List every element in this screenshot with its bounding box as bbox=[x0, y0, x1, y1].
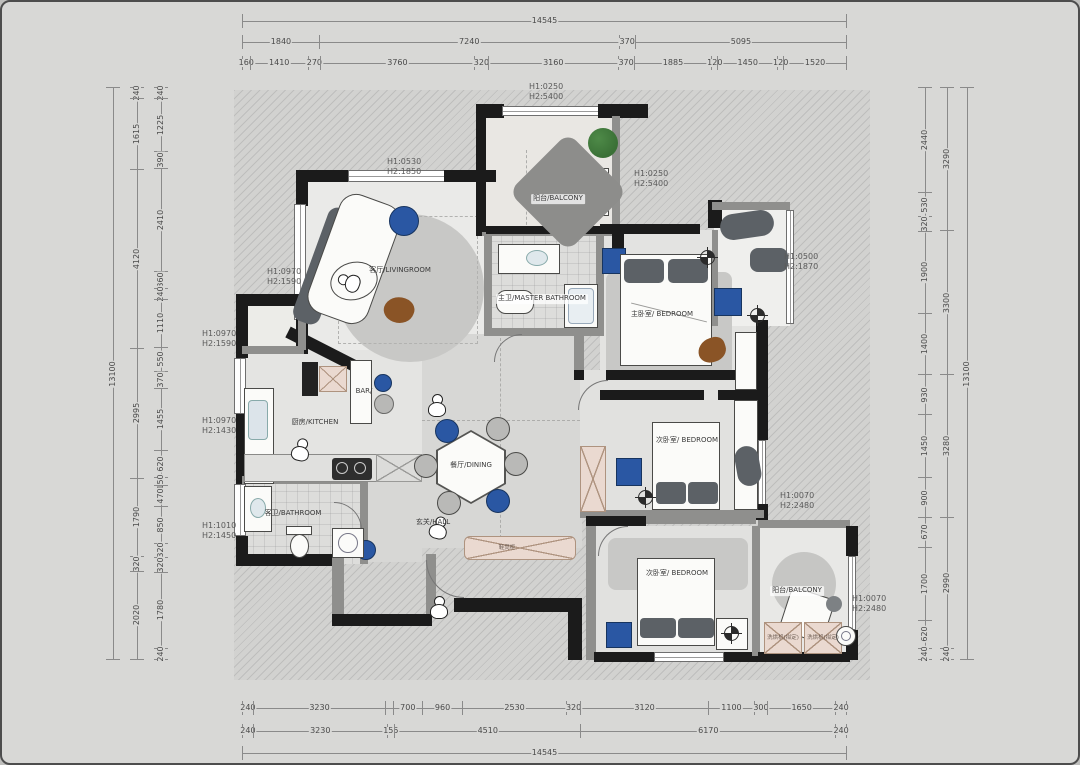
dim-label: 670 bbox=[921, 524, 929, 541]
height-note: H1:0500H2:1870 bbox=[784, 252, 818, 272]
dining-chair bbox=[486, 417, 510, 441]
dim-segment: 160 bbox=[242, 56, 250, 70]
nightstand bbox=[616, 458, 642, 486]
bar-stool bbox=[374, 394, 394, 414]
wall bbox=[332, 614, 432, 626]
dim-segment: 6170 bbox=[580, 724, 835, 738]
height-note: H1:0970H2:1430 bbox=[202, 416, 236, 436]
room-label: 次卧室/ BEDROOM bbox=[656, 437, 718, 445]
ceiling-mark bbox=[750, 308, 765, 323]
height-note: H1:0970H2:1590 bbox=[202, 329, 236, 349]
dim-label: 960 bbox=[434, 704, 451, 712]
wall bbox=[752, 526, 760, 656]
dim-label: 1520 bbox=[804, 59, 826, 67]
dim-segment: 1455 bbox=[154, 388, 168, 451]
dim-segment: 240 bbox=[242, 724, 253, 738]
height-note-h1: H1:0070 bbox=[852, 594, 886, 604]
dim-segment: 390 bbox=[154, 151, 168, 169]
burner bbox=[354, 462, 366, 474]
room-label: BAR/ bbox=[356, 388, 373, 396]
dim-segment: 1840 bbox=[242, 35, 319, 49]
dim-label: 3230 bbox=[308, 704, 330, 712]
dim-segment: 1100 bbox=[708, 701, 754, 715]
dim-label: 2990 bbox=[943, 572, 951, 594]
dim-segment: 3280 bbox=[940, 374, 954, 517]
nightstand bbox=[714, 288, 742, 316]
dim-segment: 320 bbox=[918, 216, 932, 231]
dining-chair bbox=[504, 452, 528, 476]
dim-label: 4120 bbox=[133, 248, 141, 270]
dining-chair bbox=[437, 491, 461, 515]
window bbox=[654, 652, 724, 662]
dim-chain-top-outer: 14545 bbox=[242, 14, 847, 28]
height-note-h1: H1:0250 bbox=[634, 169, 668, 179]
basin bbox=[526, 250, 548, 266]
dim-segment: 620 bbox=[918, 620, 932, 648]
dim-label: 5095 bbox=[730, 38, 752, 46]
dim-segment: 320 bbox=[566, 701, 580, 715]
dim-label: 240 bbox=[943, 645, 951, 662]
wall bbox=[332, 554, 344, 620]
wall bbox=[444, 170, 496, 182]
dim-segment: 1700 bbox=[918, 547, 932, 621]
dim-segment: 370 bbox=[619, 35, 635, 49]
wall bbox=[718, 390, 760, 400]
dim-segment: 240 bbox=[154, 648, 168, 659]
height-note-h1: H1:0970 bbox=[267, 267, 301, 277]
wall bbox=[242, 346, 304, 354]
dim-segment: 1790 bbox=[130, 478, 144, 556]
dim-segment: 240 bbox=[835, 724, 846, 738]
dim-label: 3300 bbox=[943, 292, 951, 314]
wall bbox=[846, 526, 858, 556]
dim-segment: 3120 bbox=[580, 701, 708, 715]
height-note-h2: H2:1590 bbox=[267, 277, 301, 287]
furniture-label: 洗烘机(拟定) bbox=[807, 635, 839, 641]
dim-label: 3160 bbox=[542, 59, 564, 67]
height-note: H1:0970H2:1590 bbox=[267, 267, 301, 287]
dim-segment: 900 bbox=[918, 477, 932, 516]
dim-label: 1225 bbox=[157, 114, 165, 136]
dim-label: 550 bbox=[157, 351, 165, 368]
dim-label: 14545 bbox=[531, 17, 558, 25]
dim-segment bbox=[385, 701, 392, 715]
dim-segment: 2440 bbox=[918, 87, 932, 192]
dim-segment: 3760 bbox=[320, 56, 474, 70]
room-label: 阳台/BALCONY bbox=[770, 586, 824, 596]
dim-segment: 370 bbox=[618, 56, 634, 70]
dim-chain-right-outer: 13100 bbox=[960, 87, 974, 660]
room-label: 主卧室/ BEDROOM bbox=[631, 311, 693, 319]
wall bbox=[586, 524, 596, 660]
room-label: 玄关/HALL bbox=[416, 519, 450, 527]
dining-chair bbox=[414, 454, 438, 478]
room-label: 次卧室/ BEDROOM bbox=[646, 570, 708, 578]
room-label: 阳台/BALCONY bbox=[531, 194, 585, 204]
ceiling-mark bbox=[724, 626, 739, 641]
dim-label: 1450 bbox=[737, 59, 759, 67]
side-stool bbox=[826, 596, 842, 612]
dim-label: 1700 bbox=[921, 573, 929, 595]
dim-chain-bottom-mid: 240323015545106170240 bbox=[242, 724, 847, 738]
dim-label: 3120 bbox=[633, 704, 655, 712]
dim-segment: 1900 bbox=[918, 231, 932, 313]
dim-label: 1780 bbox=[157, 599, 165, 621]
height-note-h2: H2:1850 bbox=[387, 167, 421, 177]
height-note-h1: H1:0070 bbox=[780, 491, 814, 501]
dim-label: 3290 bbox=[943, 148, 951, 170]
dim-chain-left-mid: 24016154120299517903202020 bbox=[130, 87, 144, 660]
wall bbox=[646, 518, 756, 524]
ceiling-mark bbox=[638, 490, 653, 505]
height-note-h1: H1:0530 bbox=[387, 157, 421, 167]
dim-label: 2530 bbox=[503, 704, 525, 712]
dim-segment: 2020 bbox=[130, 571, 144, 659]
dim-segment: 1885 bbox=[634, 56, 712, 70]
dim-segment: 270 bbox=[308, 56, 320, 70]
dim-segment: 150 bbox=[154, 477, 168, 484]
height-note: H1:0070H2:2480 bbox=[780, 491, 814, 511]
washer-door bbox=[841, 631, 851, 641]
dim-label: 1100 bbox=[720, 704, 742, 712]
wall bbox=[712, 202, 790, 210]
dim-label: 370 bbox=[617, 59, 634, 67]
dim-label: 1615 bbox=[133, 123, 141, 145]
dim-segment: 240 bbox=[130, 87, 144, 98]
dim-segment: 13100 bbox=[106, 87, 120, 659]
dim-segment: 240 bbox=[918, 648, 932, 659]
dining-chair bbox=[435, 419, 459, 443]
wall bbox=[296, 180, 308, 206]
pillow bbox=[678, 618, 714, 638]
wall bbox=[236, 554, 340, 566]
dim-label: 930 bbox=[921, 386, 929, 403]
dim-segment: 240 bbox=[940, 648, 954, 659]
dim-segment: 240 bbox=[242, 701, 253, 715]
dim-label: 3280 bbox=[943, 435, 951, 457]
appliance-cabinet bbox=[319, 366, 347, 392]
sink bbox=[248, 400, 268, 440]
dim-segment: 240 bbox=[154, 288, 168, 299]
height-note: H1:0530H2:1850 bbox=[387, 157, 421, 177]
height-note-h2: H2:5400 bbox=[634, 179, 668, 189]
dim-segment: 14545 bbox=[242, 746, 846, 760]
dim-segment: 930 bbox=[918, 374, 932, 415]
window bbox=[502, 106, 600, 116]
dim-segment: 2410 bbox=[154, 168, 168, 271]
dim-segment: 670 bbox=[918, 517, 932, 547]
dim-segment: 320 bbox=[154, 543, 168, 558]
wall bbox=[600, 390, 704, 400]
height-note-h2: H2:2480 bbox=[852, 604, 886, 614]
height-note-h1: H1:0970 bbox=[202, 416, 236, 426]
ottoman bbox=[389, 206, 419, 236]
nightstand bbox=[606, 622, 632, 648]
height-note-h2: H2:1590 bbox=[202, 339, 236, 349]
wall bbox=[574, 334, 584, 372]
dining-chair bbox=[486, 489, 510, 513]
dim-label: 850 bbox=[157, 516, 165, 533]
height-note-h2: H2:5400 bbox=[529, 92, 563, 102]
dim-label: 240 bbox=[832, 727, 849, 735]
dim-label: 1900 bbox=[921, 261, 929, 283]
dim-label: 2995 bbox=[133, 402, 141, 424]
person-figure bbox=[430, 596, 446, 618]
dim-segment: 2530 bbox=[462, 701, 566, 715]
dim-label: 14545 bbox=[531, 749, 558, 757]
dim-segment: 4510 bbox=[394, 724, 580, 738]
dim-segment: 1520 bbox=[783, 56, 846, 70]
dresser bbox=[735, 332, 757, 390]
dim-chain-right-inner: 2440530320190014009301450900670170062024… bbox=[918, 87, 932, 660]
dim-segment: 470 bbox=[154, 485, 168, 506]
dim-label: 240 bbox=[832, 704, 849, 712]
dim-segment: 550 bbox=[154, 347, 168, 371]
dim-segment: 320 bbox=[154, 557, 168, 572]
plant bbox=[588, 128, 618, 158]
dim-segment: 530 bbox=[918, 192, 932, 216]
dim-segment: 300 bbox=[754, 701, 767, 715]
dim-segment: 7240 bbox=[319, 35, 619, 49]
wall bbox=[598, 104, 648, 118]
dim-label: 240 bbox=[921, 645, 929, 662]
dim-label: 390 bbox=[157, 152, 165, 169]
floor-plan-sheet: 1454518407240370509516014102703760320316… bbox=[0, 0, 1080, 765]
dim-label: 700 bbox=[399, 704, 416, 712]
dim-label: 370 bbox=[157, 371, 165, 388]
dim-label: 620 bbox=[921, 626, 929, 643]
height-note-h2: H2:1870 bbox=[784, 262, 818, 272]
dim-label: 530 bbox=[921, 196, 929, 213]
dim-label: 2440 bbox=[921, 129, 929, 151]
washer-door bbox=[338, 533, 358, 553]
wall bbox=[484, 328, 604, 336]
wall bbox=[484, 234, 492, 332]
wall bbox=[586, 516, 646, 526]
dim-chain-right-mid: 3290330032802990240 bbox=[940, 87, 954, 660]
wall bbox=[600, 224, 700, 234]
height-note-h2: H2:2480 bbox=[780, 501, 814, 511]
bar-stool bbox=[374, 374, 392, 392]
wall-entry bbox=[454, 598, 582, 612]
dim-segment: 1780 bbox=[154, 572, 168, 648]
dim-chain-bottom-inner: 24032307009602530320312011003001650240 bbox=[242, 701, 847, 715]
person-figure bbox=[290, 437, 310, 462]
dim-segment: 13100 bbox=[960, 87, 974, 659]
toilet bbox=[290, 534, 309, 558]
dim-segment: 4120 bbox=[130, 169, 144, 348]
wall bbox=[758, 520, 850, 528]
height-note-h1: H1:0250 bbox=[529, 82, 563, 92]
dim-segment: 1615 bbox=[130, 98, 144, 169]
dim-segment: 320 bbox=[474, 56, 488, 70]
dim-segment: 3230 bbox=[253, 701, 385, 715]
pillow bbox=[640, 618, 676, 638]
dim-label: 1650 bbox=[790, 704, 812, 712]
dim-segment: 240 bbox=[835, 701, 846, 715]
dim-segment: 2995 bbox=[130, 348, 144, 478]
room-label: 主卫/MASTER BATHROOM bbox=[496, 294, 588, 304]
dim-segment: 850 bbox=[154, 506, 168, 543]
pillow bbox=[688, 482, 718, 504]
dim-label: 1400 bbox=[921, 333, 929, 355]
dim-segment: 320 bbox=[130, 556, 144, 571]
height-note-h1: H1:1010 bbox=[202, 521, 236, 531]
fridge bbox=[302, 362, 318, 396]
dim-segment: 3300 bbox=[940, 230, 954, 374]
wall bbox=[574, 370, 584, 380]
dim-segment: 3230 bbox=[253, 724, 387, 738]
height-note: H1:0250H2:5400 bbox=[529, 82, 563, 102]
dim-chain-top-inner: 1601410270376032031603701885120145012015… bbox=[242, 56, 847, 70]
burner bbox=[336, 462, 348, 474]
wall-entry bbox=[568, 598, 582, 660]
height-note-h2: H2:1450 bbox=[202, 531, 236, 541]
dim-segment: 3290 bbox=[940, 87, 954, 230]
wall bbox=[476, 116, 486, 236]
wall bbox=[594, 652, 654, 662]
clothes bbox=[750, 248, 788, 272]
dim-segment: 240 bbox=[154, 87, 168, 98]
furniture-label: 鞋凳柜 bbox=[499, 545, 516, 551]
height-note-h2: H2:1430 bbox=[202, 426, 236, 436]
height-note: H1:0070H2:2480 bbox=[852, 594, 886, 614]
dim-segment: 5095 bbox=[635, 35, 846, 49]
shoe-bench bbox=[464, 536, 576, 560]
window bbox=[848, 556, 856, 630]
dim-chain-left-inner: 2401225390241036024011105503701455620150… bbox=[154, 87, 168, 660]
room-label: 餐厅/DINING bbox=[450, 462, 492, 470]
dim-label: 1790 bbox=[133, 506, 141, 528]
dim-segment: 155 bbox=[387, 724, 394, 738]
dim-segment: 14545 bbox=[242, 14, 846, 28]
dim-segment: 700 bbox=[393, 701, 422, 715]
dim-segment: 1450 bbox=[918, 414, 932, 477]
room-label: 厨房/KITCHEN bbox=[292, 419, 339, 427]
pillow bbox=[656, 482, 686, 504]
dim-segment: 1110 bbox=[154, 299, 168, 347]
dim-segment: 3160 bbox=[488, 56, 618, 70]
dim-chain-bottom-outer: 14545 bbox=[242, 746, 847, 760]
dim-label: 2020 bbox=[133, 604, 141, 626]
dim-label: 4510 bbox=[477, 727, 499, 735]
dim-label: 1110 bbox=[157, 312, 165, 334]
dim-segment: 370 bbox=[154, 371, 168, 388]
dim-label: 7240 bbox=[458, 38, 480, 46]
dim-label: 13100 bbox=[109, 360, 117, 387]
room-label: 客卫/BATHROOM bbox=[265, 510, 322, 518]
dim-label: 470 bbox=[157, 487, 165, 504]
furniture-label: 洗烘机(拟定) bbox=[767, 635, 799, 641]
dim-label: 1410 bbox=[268, 59, 290, 67]
dim-label: 3760 bbox=[386, 59, 408, 67]
dim-segment: 1650 bbox=[767, 701, 835, 715]
dim-segment: 1225 bbox=[154, 98, 168, 151]
dim-chain-left-outer: 13100 bbox=[106, 87, 120, 660]
dim-segment: 1410 bbox=[250, 56, 308, 70]
dim-label: 370 bbox=[619, 38, 636, 46]
dim-label: 620 bbox=[157, 456, 165, 473]
height-note-h1: H1:0500 bbox=[784, 252, 818, 262]
person-figure bbox=[428, 394, 444, 416]
dim-label: 6170 bbox=[697, 727, 719, 735]
dim-label: 1840 bbox=[270, 38, 292, 46]
dim-segment: 1400 bbox=[918, 313, 932, 374]
height-note: H1:0250H2:5400 bbox=[634, 169, 668, 189]
dim-label: 240 bbox=[157, 645, 165, 662]
wardrobe bbox=[580, 446, 606, 512]
dim-segment: 1450 bbox=[717, 56, 777, 70]
dim-chain-top-mid: 184072403705095 bbox=[242, 35, 847, 49]
room-label: 客厅/LIVINGROOM bbox=[369, 267, 431, 275]
dim-segment: 960 bbox=[422, 701, 462, 715]
dim-label: 1455 bbox=[157, 408, 165, 430]
dim-label: 900 bbox=[921, 489, 929, 506]
ceiling-mark bbox=[700, 250, 715, 265]
dim-label: 1885 bbox=[662, 59, 684, 67]
dim-label: 3230 bbox=[309, 727, 331, 735]
dim-label: 2410 bbox=[157, 209, 165, 231]
pillow bbox=[624, 259, 664, 283]
dim-label: 1450 bbox=[921, 435, 929, 457]
dim-segment: 2990 bbox=[940, 517, 954, 647]
dim-label: 13100 bbox=[963, 360, 971, 387]
height-note: H1:1010H2:1450 bbox=[202, 521, 236, 541]
height-note-h1: H1:0970 bbox=[202, 329, 236, 339]
